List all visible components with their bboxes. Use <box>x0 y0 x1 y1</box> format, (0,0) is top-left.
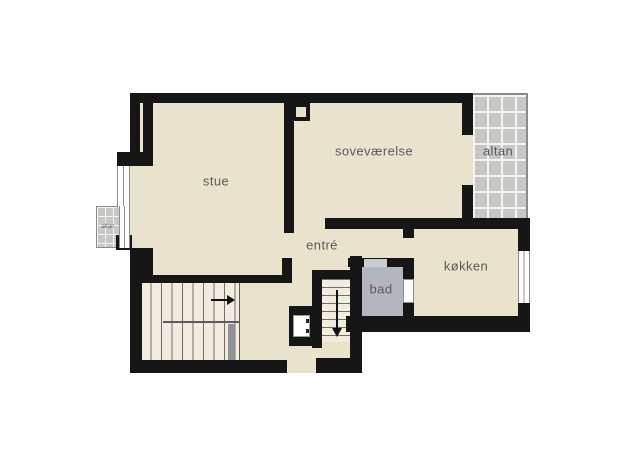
wall-segment <box>325 218 530 229</box>
wall-segment <box>316 358 362 373</box>
window <box>117 166 130 208</box>
up-arrow-head-icon <box>227 295 235 305</box>
wall-segment <box>137 275 292 283</box>
wall-segment <box>284 103 294 233</box>
up-arrow-icon <box>211 299 228 301</box>
down-arrow-head-icon <box>332 328 342 337</box>
wall-segment <box>462 185 473 218</box>
balcony-left-door <box>119 206 130 248</box>
chimney-block-core <box>296 107 306 117</box>
stair-landing-line <box>163 321 240 323</box>
wall-segment <box>282 258 292 283</box>
room-label-hall: entré <box>306 238 338 253</box>
room-label-balcony-top: altan <box>483 144 513 159</box>
door-hinge-dot <box>306 329 309 333</box>
wall-segment <box>130 248 142 373</box>
bathroom-door-opening <box>364 259 387 267</box>
room-label-bedroom: soveværelse <box>335 144 413 159</box>
door-hinge-dot <box>306 319 309 323</box>
main-staircase <box>140 283 240 360</box>
bathroom-side-door <box>403 279 414 303</box>
floor-plan: stue soveværelse altan entré køkken bad … <box>0 0 625 460</box>
wall-segment <box>142 248 153 277</box>
wall-segment <box>117 152 153 166</box>
room-label-balcony-left: altan <box>101 224 114 230</box>
wall-segment <box>346 316 530 332</box>
room-bedroom-floor <box>284 93 473 229</box>
room-label-bathroom: bad <box>370 282 393 297</box>
wall-segment <box>403 228 414 238</box>
stair-rail <box>228 324 235 360</box>
wall-segment <box>130 93 473 103</box>
wall-segment <box>130 93 140 155</box>
room-label-living-room: stue <box>203 174 229 189</box>
wall-segment <box>462 103 473 135</box>
kitchen-window <box>518 251 530 303</box>
room-label-kitchen: køkken <box>444 259 488 274</box>
down-arrow-icon <box>336 290 338 330</box>
wall-segment <box>130 360 287 373</box>
